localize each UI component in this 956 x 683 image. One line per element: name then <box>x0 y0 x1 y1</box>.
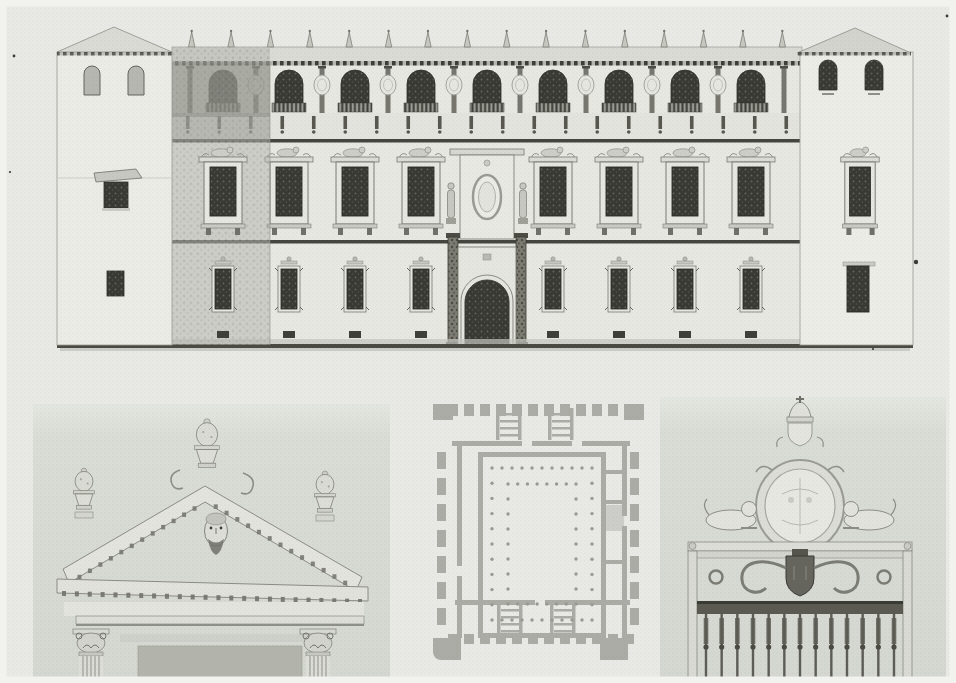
roof-finial-tip <box>663 30 665 32</box>
grille-knob <box>813 644 818 649</box>
plan-outer-pier <box>437 582 446 599</box>
stair-step <box>554 616 572 619</box>
colonnade-column-dot <box>574 557 577 560</box>
urn-lip <box>315 494 336 497</box>
window-glass <box>210 167 236 216</box>
plan-room-divider <box>606 560 626 564</box>
grille-knob <box>891 644 896 649</box>
window-cornice <box>265 157 313 162</box>
window-glass <box>540 167 566 216</box>
raking-dentil <box>151 531 155 536</box>
grille-knob <box>719 644 724 649</box>
colonnade-column-dot <box>530 618 533 621</box>
colonnade-column-dot <box>590 618 593 621</box>
basement-vent <box>679 331 691 338</box>
urn-texture <box>210 436 212 438</box>
gallery-balustrade <box>338 103 372 112</box>
plate-canvas <box>0 0 956 683</box>
left-tower-dentils <box>57 52 172 56</box>
window-crest <box>221 257 225 261</box>
basement-vent <box>283 331 295 338</box>
aedicule-crest <box>484 160 490 166</box>
colonnade-column-dot <box>490 558 493 561</box>
architrave-shadow <box>76 624 364 626</box>
mask-hair <box>206 513 226 525</box>
urn-pedestal <box>75 512 93 518</box>
window-sill <box>201 224 245 228</box>
cornice-dentil <box>88 592 92 597</box>
colonnade-column-dot <box>570 618 573 621</box>
plan-outer-pier <box>528 404 538 416</box>
grille-baluster <box>845 618 850 644</box>
stair-step <box>501 630 519 633</box>
plan-outer-pier <box>630 478 639 495</box>
corbel-bracket <box>532 116 536 129</box>
window-crest-bar <box>281 261 297 264</box>
plan-room-block <box>604 505 624 531</box>
column-neck <box>306 652 330 656</box>
colonnade-column-dot <box>580 618 583 621</box>
colonnade-column-dot <box>574 527 577 530</box>
plan-outer-pier <box>464 404 474 416</box>
window-crest <box>749 257 753 261</box>
grille-baluster <box>704 618 709 644</box>
urn-texture <box>87 482 89 484</box>
colonnade-column-dot <box>590 573 593 576</box>
plan-outer-pier <box>630 504 639 521</box>
basement-vent <box>745 331 757 338</box>
courtyard-wall <box>478 452 606 457</box>
corbel-bracket <box>438 116 442 129</box>
colonnade-column-dot <box>500 466 503 469</box>
colonnade-column-dot <box>574 497 577 500</box>
cornice-dentil <box>178 594 182 599</box>
stair-step <box>500 413 518 416</box>
gate-post <box>688 551 697 683</box>
shield-relief <box>578 75 594 95</box>
window-sill <box>531 224 575 228</box>
frieze-band <box>64 602 364 616</box>
sill-bracket <box>602 228 607 235</box>
sill-bracket <box>206 228 211 235</box>
portal-column <box>448 237 458 346</box>
urn-pedestal <box>316 515 334 521</box>
grille-knob <box>860 644 865 649</box>
colonnade-column-dot <box>490 466 493 469</box>
window-cornice <box>331 157 379 162</box>
plan-corner-tower <box>624 404 644 420</box>
corbel-drop <box>532 130 536 134</box>
corbel-bracket <box>595 116 599 129</box>
colonnade-column-dot <box>490 482 493 485</box>
stair-step <box>500 427 518 430</box>
grille-baluster <box>782 618 787 644</box>
stair-step <box>500 434 518 437</box>
window-cornice <box>199 157 247 162</box>
colonnade-column-dot <box>516 482 519 485</box>
corbel-drop <box>375 130 379 134</box>
pilaster-capital <box>516 66 524 69</box>
shield-relief <box>380 75 396 95</box>
mask-eye <box>210 527 213 530</box>
tower-window-sill <box>868 93 880 95</box>
roof-finial-tip <box>466 30 468 32</box>
grille-knob <box>766 644 771 649</box>
colonnade-column-dot <box>506 602 509 605</box>
gallery-arched-window <box>539 70 567 103</box>
tower-window-sill <box>102 208 130 211</box>
raking-dentil <box>257 530 261 535</box>
sill-bracket <box>734 228 739 235</box>
lion-head <box>742 502 757 517</box>
urn-lip <box>74 491 95 494</box>
cornice-dentil <box>165 594 169 599</box>
gallery-arched-window <box>605 70 633 103</box>
raking-dentil <box>193 506 197 511</box>
plan-outer-pier <box>576 404 586 416</box>
colonnade-column-dot <box>506 527 509 530</box>
colonnade-column-dot <box>590 512 593 515</box>
plan-outer-pier <box>592 404 602 416</box>
grated-window <box>215 269 231 309</box>
colonnade-column-dot <box>580 466 583 469</box>
grille-knob <box>735 644 740 649</box>
raking-dentil <box>311 562 315 567</box>
shield-relief <box>446 75 462 95</box>
colonnade-column-dot <box>590 527 593 530</box>
post-finial <box>904 543 911 550</box>
colonnade-column-dot <box>506 557 509 560</box>
tower-arched-window <box>819 60 837 90</box>
window-glass <box>738 167 764 216</box>
gallery-pilaster <box>782 66 787 113</box>
statue-head <box>448 183 454 189</box>
stair-rail <box>570 408 574 440</box>
print-speck <box>13 55 16 58</box>
grated-window <box>281 269 297 309</box>
corbel-drop <box>501 130 505 134</box>
plan-room-divider <box>606 500 626 504</box>
window-crest-bar <box>743 261 759 264</box>
statue-pedestal <box>518 218 528 224</box>
corbel-drop <box>312 130 316 134</box>
gallery-balustrade <box>602 103 636 112</box>
corbel-drop <box>784 130 788 134</box>
basement-vent <box>547 331 559 338</box>
corbel-bracket <box>312 116 316 129</box>
ground-smudge <box>60 348 910 351</box>
sill-bracket <box>631 228 636 235</box>
window-crest-bar <box>347 261 363 264</box>
colonnade-column-dot <box>560 618 563 621</box>
grated-window <box>677 269 693 309</box>
colonnade-column-dot <box>490 588 493 591</box>
lion-head <box>623 147 629 153</box>
roof-finial-tip <box>781 30 783 32</box>
plan-outer-pier <box>437 556 446 573</box>
corbel-drop <box>469 130 473 134</box>
colonnade-column-dot <box>490 618 493 621</box>
window-glass <box>850 167 871 216</box>
raking-dentil <box>119 550 123 555</box>
roof-finial-tip <box>230 30 232 32</box>
corbel-drop <box>564 130 568 134</box>
window-cornice <box>595 157 643 162</box>
roof-finial-tip <box>742 30 744 32</box>
raking-dentil <box>140 537 144 542</box>
lion-head <box>425 147 431 153</box>
grille-knob <box>829 644 834 649</box>
corbel-drop <box>406 130 410 134</box>
print-speck <box>946 15 949 18</box>
gate-detail-panel <box>660 396 946 683</box>
colonnade-column-dot <box>590 558 593 561</box>
grille-knob <box>844 644 849 649</box>
colonnade-column-dot <box>506 587 509 590</box>
corbel-drop <box>595 130 599 134</box>
plan-wall <box>455 600 535 605</box>
raking-dentil <box>130 544 134 549</box>
stair-step <box>501 616 519 619</box>
plan-outer-pier <box>630 530 639 547</box>
sill-bracket <box>536 228 541 235</box>
colonnade-column-dot <box>590 588 593 591</box>
plan-corridor-wall <box>457 576 462 638</box>
sill-bracket <box>301 228 306 235</box>
roof-finial-tip <box>505 30 507 32</box>
lion-head <box>557 147 563 153</box>
grille-knob <box>876 644 881 649</box>
urn-texture <box>80 478 82 480</box>
roof-finial-tip <box>190 30 192 32</box>
crown-band <box>787 417 813 422</box>
grille-top-rail-edge <box>697 601 903 604</box>
colonnade-column-dot <box>510 618 513 621</box>
colonnade-column-dot <box>545 482 548 485</box>
raking-dentil <box>225 511 229 516</box>
window-cornice <box>661 157 709 162</box>
colonnade-column-dot <box>540 618 543 621</box>
cornice-dentil <box>113 592 117 597</box>
plan-outer-pier <box>630 452 639 469</box>
stair-rail <box>548 408 552 440</box>
cornice-dentil <box>307 598 311 603</box>
basement-vent <box>349 331 361 338</box>
cornice-dentil <box>268 597 272 602</box>
colonnade-column-dot <box>574 587 577 590</box>
grated-window <box>611 269 627 309</box>
raking-dentil <box>279 543 283 548</box>
stair-step <box>554 623 572 626</box>
corinthian-capital <box>77 633 105 653</box>
corbel-drop <box>627 130 631 134</box>
stair-step <box>554 630 572 633</box>
raking-dentil <box>322 568 326 573</box>
colonnade-column-dot <box>490 603 493 606</box>
grille-baluster <box>860 618 865 644</box>
urn-foot <box>77 505 92 509</box>
grille-knob <box>797 644 802 649</box>
window-crest-bar <box>677 261 693 264</box>
pilaster-capital <box>318 66 326 69</box>
corbel-bracket <box>406 116 410 129</box>
statue-pedestal <box>446 218 456 224</box>
cornice-dentil <box>75 591 79 596</box>
sill-bracket <box>404 228 409 235</box>
colonnade-column-dot <box>535 602 538 605</box>
window-crest <box>551 257 555 261</box>
sill-bracket <box>272 228 277 235</box>
plan-outer-pier <box>437 608 446 625</box>
stair-step <box>554 609 572 612</box>
colonnade-column-dot <box>506 512 509 515</box>
window-glass <box>672 167 698 216</box>
urn-texture <box>321 481 323 483</box>
stair-step <box>501 623 519 626</box>
corbel-bracket <box>627 116 631 129</box>
raking-dentil <box>77 575 81 580</box>
pilaster-capital <box>714 66 722 69</box>
stair-step <box>552 434 570 437</box>
cornice-dentil <box>255 596 259 601</box>
window-sill <box>267 224 311 228</box>
raking-dentil <box>268 536 272 541</box>
grille-baluster <box>876 618 881 644</box>
colonnade-column-dot <box>506 497 509 500</box>
colonnade-column-dot <box>530 466 533 469</box>
grated-window <box>413 269 429 309</box>
right-tower-dentils <box>797 52 911 56</box>
gallery-arched-window <box>275 70 303 103</box>
sill-bracket <box>235 228 240 235</box>
raking-dentil <box>172 519 176 524</box>
colonnade-column-dot <box>490 542 493 545</box>
colonnade-column-dot <box>506 542 509 545</box>
urn-fruit-cluster <box>196 423 217 447</box>
corbel-bracket <box>753 116 757 129</box>
lion-head <box>293 147 299 153</box>
roof-finial-tip <box>309 30 311 32</box>
grated-window <box>545 269 561 309</box>
plan-corridor-wall <box>622 526 627 638</box>
colonnade-column-dot <box>574 482 577 485</box>
sill-bracket <box>565 228 570 235</box>
gallery-balustrade <box>404 103 438 112</box>
tower-small-window <box>107 271 124 296</box>
urn-texture <box>328 485 330 487</box>
corbel-drop <box>658 130 662 134</box>
stair-step <box>501 609 519 612</box>
portal-column <box>516 237 526 346</box>
sill-bracket <box>338 228 343 235</box>
corbel-drop <box>690 130 694 134</box>
stair-step <box>500 420 518 423</box>
cornice-dentil <box>139 593 143 598</box>
corbel-drop <box>721 130 725 134</box>
pilaster-capital <box>780 66 788 69</box>
raking-dentil <box>289 549 293 554</box>
grille-baluster <box>798 618 803 644</box>
sill-bracket <box>870 228 875 235</box>
urn-foot <box>198 463 216 467</box>
stair-step <box>552 413 570 416</box>
grille-knob <box>703 644 708 649</box>
pilaster-capital <box>384 66 392 69</box>
pilaster-capital <box>450 66 458 69</box>
colonnade-column-dot <box>510 466 513 469</box>
window-crest <box>419 257 423 261</box>
window-sill <box>333 224 377 228</box>
tower-window <box>104 182 128 208</box>
corbel-bracket <box>343 116 347 129</box>
raking-dentil <box>246 523 250 528</box>
sill-bracket <box>697 228 702 235</box>
corbel-drop <box>753 130 757 134</box>
window-cornice <box>727 157 775 162</box>
gallery-arched-window <box>407 70 435 103</box>
colonnade-column-dot <box>490 573 493 576</box>
plan-outer-pier <box>437 478 446 495</box>
cornice-dentil <box>126 593 130 598</box>
grille-baluster <box>766 618 771 644</box>
window-glass <box>606 167 632 216</box>
corinthian-capital <box>304 633 332 653</box>
raking-dentil <box>332 574 336 579</box>
shield-relief <box>512 75 528 95</box>
window-cornice <box>841 157 879 162</box>
architrave-band <box>76 616 364 624</box>
gallery-arched-window <box>473 70 501 103</box>
colonnade-column-dot <box>590 497 593 500</box>
plan-outer-pier <box>464 634 474 644</box>
colonnade-column-dot <box>574 572 577 575</box>
colonnade-column-dot <box>500 618 503 621</box>
plan-wall <box>582 441 630 446</box>
corbel-bracket <box>501 116 505 129</box>
urn-texture <box>202 431 204 433</box>
portal-arched-door <box>465 280 509 345</box>
corbel-bracket <box>375 116 379 129</box>
statue-figure <box>448 190 455 218</box>
sill-bracket <box>763 228 768 235</box>
pilaster-capital <box>582 66 590 69</box>
plan-room-divider <box>606 470 626 474</box>
gallery-arched-window <box>341 70 369 103</box>
lion-head <box>755 147 761 153</box>
pendant-crest <box>786 556 814 596</box>
grille-baluster <box>813 618 818 644</box>
raking-dentil <box>161 525 165 530</box>
basement-vent <box>415 331 427 338</box>
grille-knob <box>782 644 787 649</box>
oval-coat-of-arms-inner <box>479 182 496 212</box>
scanned-plate <box>0 0 956 683</box>
colonnade-column-dot <box>590 542 593 545</box>
lintel-shadow <box>120 634 320 642</box>
basement-vent <box>217 331 229 338</box>
cornice-dentil <box>152 593 156 598</box>
tower-arched-window <box>128 66 144 95</box>
colonnade-column-dot <box>506 482 509 485</box>
colonnade-column-dot <box>516 602 519 605</box>
grille-knob <box>750 644 755 649</box>
lion-head <box>844 502 859 517</box>
crown-cross <box>796 398 804 400</box>
window-sill <box>729 224 773 228</box>
colonnade-column-dot <box>550 466 553 469</box>
plan-corner-tower <box>433 638 461 660</box>
cornice-dentil <box>204 595 208 600</box>
